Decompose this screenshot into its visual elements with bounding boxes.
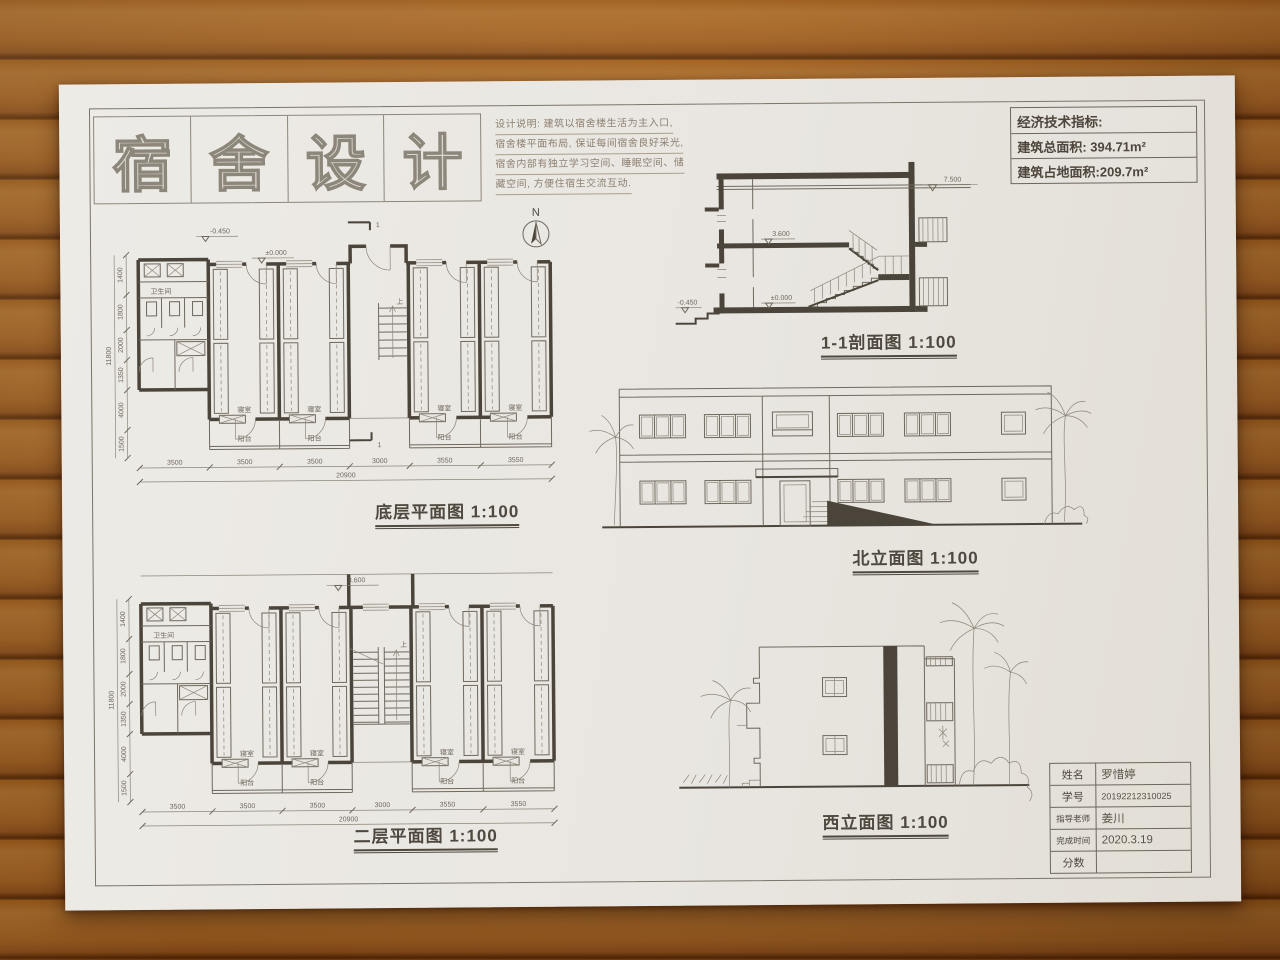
svg-text:阳台: 阳台 [240, 778, 254, 787]
svg-text:±0.000: ±0.000 [771, 295, 793, 302]
north-elevation-drawing [599, 372, 1085, 548]
svg-text:7.500: 7.500 [944, 177, 962, 184]
stair-plan: 上 [366, 246, 407, 360]
title-block-row: 指导老师 姜川 [1050, 807, 1190, 830]
svg-text:3500: 3500 [240, 803, 256, 810]
svg-text:阳台: 阳台 [308, 434, 322, 443]
stair-plan: 上 [349, 640, 410, 724]
svg-text:1400: 1400 [117, 267, 124, 283]
svg-text:寝室: 寝室 [237, 405, 251, 414]
section-balcony-railings [919, 218, 948, 306]
title-block-row: 完成时间 2020.3.19 [1051, 829, 1191, 852]
ground-plan-label-wrap: 底层平面图 1:100 [347, 497, 547, 528]
west-elevation-drawing [676, 580, 1033, 805]
score-label: 分数 [1051, 852, 1097, 873]
svg-text:3500: 3500 [170, 804, 186, 811]
svg-text:-0.450: -0.450 [210, 228, 230, 235]
svg-text:3.600: 3.600 [772, 231, 790, 238]
footprint-area-row: 建筑占地面积:209.7m² [1011, 158, 1196, 183]
svg-text:3500: 3500 [167, 460, 183, 467]
section-site-steps [676, 313, 720, 323]
section-cut-marks: 1 1 [348, 222, 382, 449]
svg-text:3550: 3550 [511, 801, 527, 808]
title-block: 姓名 罗惜婷 学号 20192212310025 指导老师 姜川 完成时间 20… [1049, 762, 1192, 874]
svg-text:卫生间: 卫生间 [150, 287, 171, 296]
ground-plan-label: 底层平面图 1:100 [375, 497, 519, 527]
title-block-row: 学号 20192212310025 [1050, 785, 1190, 808]
title-block-row: 分数 [1051, 851, 1191, 873]
svg-text:2000: 2000 [120, 681, 127, 697]
advisor-label: 指导老师 [1050, 808, 1096, 829]
note-line: 宿舍内部有独立学习空间、睡眠空间、储 [495, 154, 684, 175]
name-value: 罗惜婷 [1096, 765, 1190, 782]
svg-text:±0.000: ±0.000 [265, 250, 287, 257]
svg-text:-0.450: -0.450 [678, 300, 698, 307]
completion-date-value: 2020.3.19 [1097, 833, 1191, 846]
title-block-row: 姓名 罗惜婷 [1050, 763, 1190, 786]
svg-text:寝室: 寝室 [437, 404, 451, 413]
second-plan-label-wrap: 二层平面图 1:100 [326, 821, 526, 852]
svg-text:2000: 2000 [118, 337, 125, 353]
svg-text:寝室: 寝室 [307, 405, 321, 414]
svg-text:阳台: 阳台 [438, 433, 452, 442]
svg-text:1800: 1800 [118, 304, 125, 320]
note-line: 藏空间, 方便住宿生交流互动. [495, 174, 631, 195]
poster-title: 宿 舍 设 计 [93, 113, 482, 204]
svg-text:寝室: 寝室 [240, 749, 254, 758]
svg-text:4000: 4000 [121, 746, 128, 762]
svg-text:寝室: 寝室 [440, 748, 454, 757]
student-id-label: 学号 [1050, 786, 1096, 807]
title-char: 舍 [191, 116, 288, 203]
svg-text:寝室: 寝室 [310, 749, 324, 758]
svg-text:1400: 1400 [120, 611, 127, 627]
total-area-row: 建筑总面积: 394.71m² [1011, 133, 1196, 159]
svg-text:11800: 11800 [109, 691, 116, 710]
student-id-value: 20192212310025 [1096, 790, 1190, 801]
svg-text:3500: 3500 [307, 459, 323, 466]
section-drawing: 7.500 3.600 ±0.000 -0.450 [672, 155, 988, 329]
svg-text:1: 1 [378, 442, 382, 449]
svg-text:1800: 1800 [120, 648, 127, 664]
title-char: 计 [384, 114, 480, 201]
svg-text:1500: 1500 [121, 780, 128, 796]
svg-text:3500: 3500 [310, 803, 326, 810]
west-elevation-label: 西立面图 1:100 [822, 808, 948, 838]
svg-text:上: 上 [400, 640, 407, 649]
svg-text:1500: 1500 [119, 436, 126, 452]
section-label-wrap: 1-1剖面图 1:100 [789, 327, 989, 358]
svg-text:寝室: 寝室 [508, 403, 522, 412]
svg-text:阳台: 阳台 [238, 434, 252, 443]
second-floor-plan: 卫生间 寝室 寝室 寝室 寝室 阳台 阳台 阳台 [90, 551, 572, 847]
section-label: 1-1剖面图 1:100 [821, 328, 957, 358]
second-plan-label: 二层平面图 1:100 [353, 821, 497, 851]
svg-text:卫生间: 卫生间 [153, 631, 174, 640]
advisor-value: 姜川 [1097, 809, 1191, 826]
svg-text:11800: 11800 [106, 347, 113, 366]
svg-text:阳台: 阳台 [509, 432, 523, 441]
note-line: 设计说明: 建筑以宿舍楼生活为主入口, [495, 114, 673, 135]
plan-level-marks: -0.450 ±0.000 [196, 228, 294, 264]
svg-text:3550: 3550 [440, 802, 456, 809]
svg-text:阳台: 阳台 [310, 778, 324, 787]
bedrooms: 寝室 寝室 寝室 寝室 [216, 602, 549, 784]
svg-text:寝室: 寝室 [511, 747, 525, 756]
elevation-building [601, 386, 1082, 528]
svg-text:3000: 3000 [372, 458, 388, 465]
palm-tree-sketch [682, 602, 1032, 804]
section-stair [808, 230, 910, 307]
svg-text:3000: 3000 [375, 802, 391, 809]
elevation-building [678, 645, 1029, 788]
note-line: 宿舍楼平面布局, 保证每间宿舍良好采光, [495, 134, 683, 155]
svg-text:1350: 1350 [118, 367, 125, 383]
svg-text:3550: 3550 [508, 457, 524, 464]
balconies: 阳台 阳台 阳台 阳台 [212, 761, 554, 794]
indicators-heading: 经济技术指标: [1011, 107, 1196, 134]
title-char: 宿 [94, 117, 191, 204]
svg-text:20900: 20900 [336, 472, 356, 479]
plan-level-marks: 3.600 [327, 577, 379, 590]
svg-text:1350: 1350 [121, 711, 128, 727]
svg-text:阳台: 阳台 [440, 777, 454, 786]
svg-text:4000: 4000 [118, 402, 125, 418]
ground-floor-plan: 卫生间 寝室 寝室 寝室 寝室 阳台 阳台 阳台 [88, 207, 570, 503]
toilet-wing: 卫生间 [138, 259, 209, 390]
svg-text:3.600: 3.600 [348, 577, 366, 584]
name-label: 姓名 [1050, 764, 1096, 785]
svg-text:阳台: 阳台 [511, 776, 525, 785]
drawing-sheet: 宿 舍 设 计 设计说明: 建筑以宿舍楼生活为主入口, 宿舍楼平面布局, 保证每… [59, 75, 1241, 910]
svg-text:上: 上 [396, 297, 403, 306]
technical-indicators-box: 经济技术指标: 建筑总面积: 394.71m² 建筑占地面积:209.7m² [1010, 106, 1198, 184]
north-elevation-label: 北立面图 1:100 [852, 543, 978, 573]
svg-text:3550: 3550 [437, 458, 453, 465]
svg-text:1: 1 [376, 222, 380, 229]
svg-text:3500: 3500 [237, 459, 253, 466]
north-elevation-label-wrap: 北立面图 1:100 [815, 543, 1015, 574]
completion-date-label: 完成时间 [1051, 830, 1097, 851]
title-char: 设 [288, 115, 385, 202]
toilet-wing: 卫生间 [141, 603, 212, 734]
score-value [1097, 861, 1191, 862]
west-elevation-label-wrap: 西立面图 1:100 [785, 807, 985, 838]
